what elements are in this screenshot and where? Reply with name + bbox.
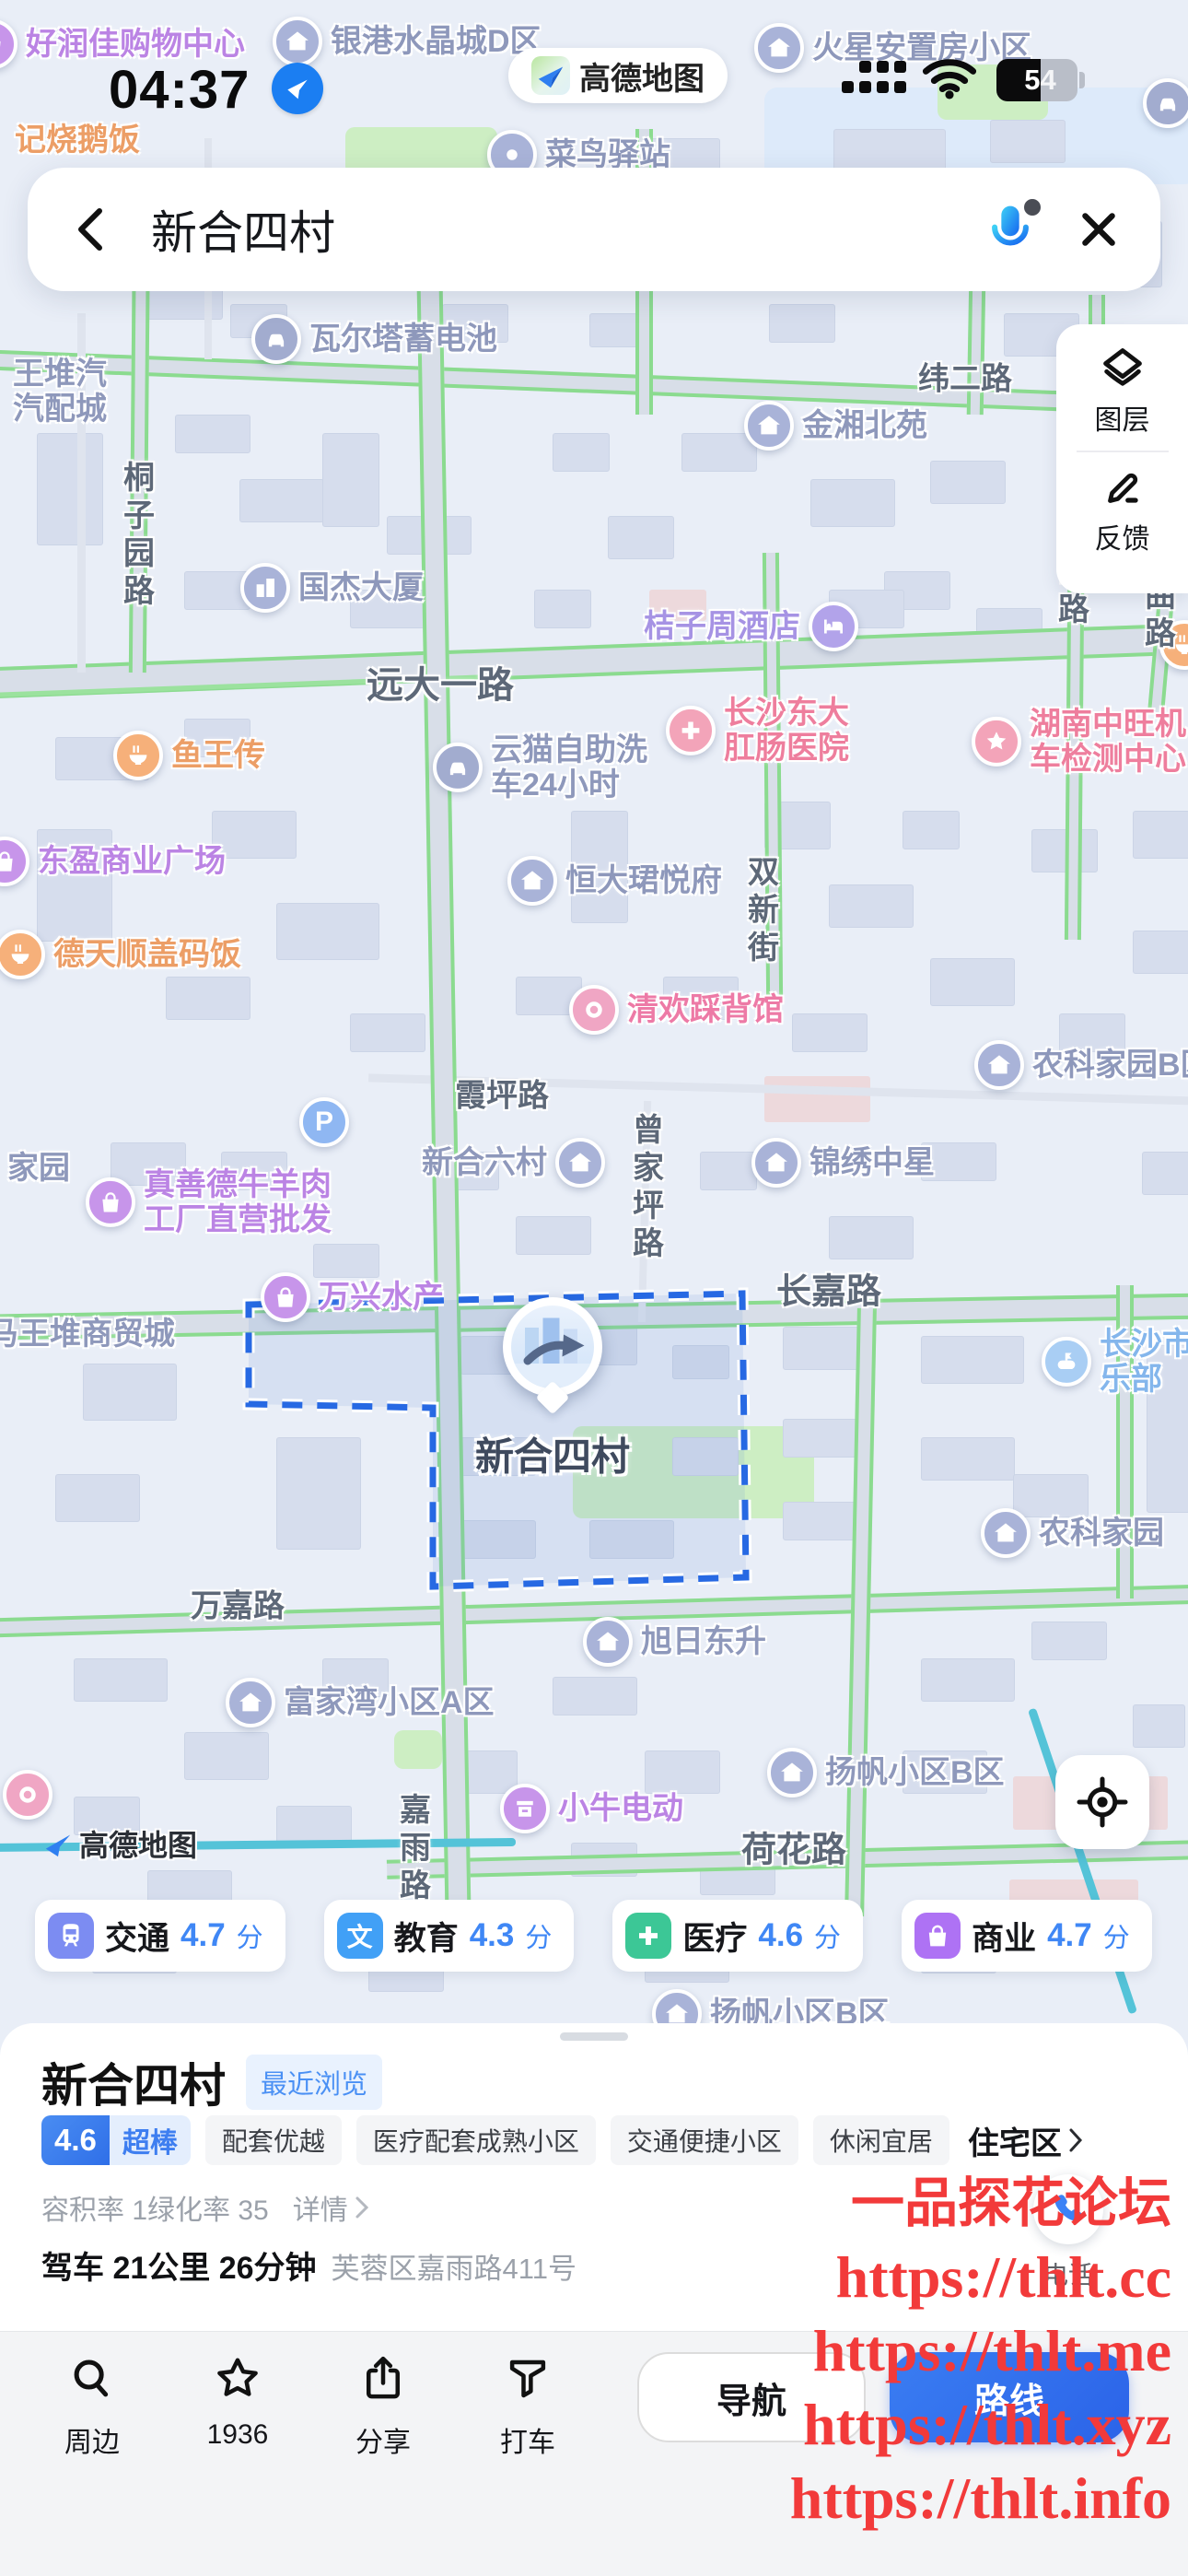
score-value: 4.6: [41, 2115, 110, 2165]
road-label: 双新街: [739, 855, 784, 968]
poi-label: 恒大珺悦府: [565, 863, 722, 898]
changsha-club[interactable]: 长沙市乐部: [1042, 1327, 1188, 1397]
guojie-building[interactable]: 国杰大厦: [240, 563, 424, 613]
amap-watermark-logo-icon: [42, 1828, 74, 1859]
forum-watermark-urls: https://thlt.cchttps://thlt.mehttps://th…: [790, 2241, 1171, 2535]
drive-info-row: 驾车 21公里 26分钟 芙蓉区嘉雨路411号: [41, 2242, 577, 2288]
forum-watermark-url: https://thlt.me: [790, 2314, 1171, 2388]
poi-label: 扬帆小区B区: [825, 1755, 1005, 1790]
house-icon: [226, 1678, 275, 1727]
forum-watermark-url: https://thlt.info: [790, 2462, 1171, 2535]
parking-icon: P: [299, 1097, 349, 1147]
yunmao-carwash[interactable]: 云猫自助洗车24小时: [433, 732, 647, 802]
rating-chip-education[interactable]: 文教育4.3分: [324, 1900, 575, 1972]
toolbar-label: 分享: [355, 2419, 411, 2460]
rating-unit: 分: [1103, 1916, 1130, 1955]
map-tools-panel: 图层 反馈: [1056, 324, 1188, 593]
place-tags-row: 4.6 超棒 配套优越医疗配套成熟小区交通便捷小区休闲宜居 住宅区: [41, 2115, 1086, 2165]
amap-brand-pill[interactable]: 高德地图: [508, 48, 728, 103]
star-icon: [972, 717, 1021, 767]
transit-icon: [48, 1913, 94, 1959]
mawangdui-trade-city[interactable]: 马王堆商贸城: [0, 1317, 175, 1352]
buildings-arrow-icon: [511, 1306, 594, 1388]
rating-unit: 分: [237, 1916, 263, 1955]
poi-label: 马王堆商贸城: [0, 1317, 175, 1352]
rating-score: 4.6: [758, 1917, 803, 1954]
poi-label: 王堆汽汽配城: [13, 357, 107, 427]
place-tag: 交通便捷小区: [611, 2115, 798, 2165]
amap-logo-icon: [531, 56, 570, 95]
yuwangchuan[interactable]: 鱼王传: [113, 731, 265, 780]
toolbar-taxi-button[interactable]: 打车: [472, 2354, 583, 2460]
fujiawan-a[interactable]: 富家湾小区A区: [226, 1678, 495, 1727]
toolbar-nearby-button[interactable]: 周边: [37, 2354, 147, 2460]
place-tag: 休闲宜居: [813, 2115, 949, 2165]
recent-view-badge: 最近浏览: [246, 2055, 382, 2110]
basket-icon: [261, 1272, 310, 1322]
toolbar-label: 周边: [64, 2419, 120, 2460]
scooter-icon: [500, 1784, 550, 1833]
road-label: 霞坪路: [455, 1071, 549, 1116]
drive-time: 驾车 21公里 26分钟: [41, 2242, 317, 2288]
location-arrow-icon: [272, 63, 323, 114]
poi-label: 长沙市乐部: [1100, 1327, 1188, 1397]
panel-divider: [1077, 451, 1169, 452]
zhongwang-vehicle-test[interactable]: 湖南中旺机车检测中心: [972, 707, 1186, 777]
poi-label: 记烧鹅饭: [15, 123, 140, 158]
road-label: 荷花路: [741, 1821, 846, 1872]
business-icon: [914, 1913, 961, 1959]
back-button[interactable]: [72, 205, 109, 253]
jinxiu-zhongxing[interactable]: 锦绣中星: [751, 1138, 935, 1188]
ring-icon: [3, 1770, 52, 1820]
selected-place-marker[interactable]: [503, 1297, 602, 1397]
poi-label: 锦绣中星: [809, 1145, 935, 1180]
poi-label: 新合六村: [422, 1145, 547, 1180]
rating-unit: 分: [814, 1916, 841, 1955]
category-link[interactable]: 住宅区: [968, 2118, 1086, 2163]
share-icon: [358, 2354, 408, 2408]
details-link[interactable]: 详情: [293, 2187, 370, 2228]
poi-label: 云猫自助洗车24小时: [491, 732, 647, 802]
amap-app-screen: 纬二路远大一路霞坪路长嘉路万嘉路荷花路桐子园路双新街陶家山路曲路曾家坪路嘉雨路好…: [0, 0, 1188, 2576]
place-tag: 医疗配套成熟小区: [356, 2115, 596, 2165]
sheet-drag-handle[interactable]: [560, 2032, 628, 2041]
house-icon: [273, 17, 322, 66]
wangdui-auto[interactable]: 王堆汽汽配城: [13, 357, 107, 427]
house-icon: [767, 1748, 817, 1797]
toolbar-label: 打车: [500, 2419, 555, 2460]
house-icon: [754, 23, 804, 73]
metrics-host: 容积率 1绿化率 35: [41, 2187, 269, 2228]
rating-score: 4.7: [1047, 1917, 1092, 1954]
cellular-signal-icon: [842, 61, 908, 101]
score-pill: 4.6 超棒: [41, 2115, 191, 2165]
place-address: 芙蓉区嘉雨路411号: [332, 2245, 577, 2287]
tags-host: 配套优越医疗配套成熟小区交通便捷小区休闲宜居: [205, 2115, 949, 2165]
juzizhou-hotel[interactable]: 桔子周酒店: [644, 602, 858, 651]
road-label: 万嘉路: [191, 1581, 285, 1626]
shopping-icon: [0, 19, 17, 69]
varta-battery[interactable]: 瓦尔塔蓄电池: [251, 314, 497, 364]
search-icon: [67, 2354, 117, 2408]
poi-label: 瓦尔塔蓄电池: [309, 322, 497, 357]
cross-icon: [666, 706, 716, 755]
poi-label: 富家湾小区A区: [284, 1685, 495, 1720]
sheet-title-row: 新合四村 最近浏览: [41, 2049, 382, 2115]
dongying-plaza[interactable]: 东盈商业广场: [0, 837, 226, 886]
house-icon: [555, 1138, 605, 1188]
feedback-label[interactable]: 反馈: [1095, 516, 1150, 556]
poi-label: 农科家园: [1039, 1516, 1164, 1551]
rating-score: 4.7: [181, 1917, 226, 1954]
house-icon: [583, 1617, 633, 1667]
forum-watermark-url: https://thlt.xyz: [790, 2388, 1171, 2462]
rating-label: 商业: [972, 1913, 1036, 1960]
poi-label: 德天顺盖码饭: [53, 937, 241, 972]
xinhe-liucun[interactable]: 新合六村: [422, 1138, 605, 1188]
amap-watermark-label: 高德地图: [79, 1822, 197, 1865]
rating-label: 交通: [105, 1913, 169, 1960]
feedback-button[interactable]: [1098, 465, 1147, 516]
status-time: 04:37: [109, 59, 250, 121]
basket-icon: [86, 1177, 135, 1227]
road-label: 远大一路: [367, 655, 514, 708]
rating-unit: 分: [525, 1916, 552, 1955]
details-label: 详情: [293, 2187, 348, 2228]
nongke-jiayuan[interactable]: 农科家园: [981, 1508, 1164, 1558]
metrics-row: 容积率 1绿化率 35 详情: [41, 2187, 370, 2228]
place-title: 新合四村: [41, 2049, 226, 2115]
amap-brand-label: 高德地图: [579, 53, 705, 99]
pink-poi-partial[interactable]: [3, 1770, 52, 1820]
jiayuan-partial[interactable]: 家园: [7, 1151, 70, 1186]
building-icon: [240, 563, 290, 613]
rating-label: 教育: [394, 1913, 459, 1960]
car-icon: [1143, 78, 1188, 128]
poi-label: 桔子周酒店: [644, 609, 800, 644]
battery-digit-right: 4: [1041, 59, 1077, 101]
house-icon: [974, 1040, 1024, 1090]
search-input[interactable]: 新合四村: [151, 196, 985, 263]
house-icon: [751, 1138, 801, 1188]
poi-label: 家园: [7, 1151, 70, 1186]
forum-watermark-url: https://thlt.cc: [790, 2241, 1171, 2314]
battery-cap: [1079, 72, 1085, 88]
category-label: 住宅区: [968, 2118, 1062, 2163]
road-label: 桐子园路: [114, 461, 159, 612]
locate-me-button[interactable]: [1055, 1755, 1149, 1849]
dongda-hospital[interactable]: 长沙东大肛肠医院: [666, 696, 849, 766]
rating-chip-transit[interactable]: 交通4.7分: [35, 1900, 285, 1972]
car-poi-partial[interactable]: [1143, 78, 1188, 128]
nongke-b[interactable]: 农科家园B区: [974, 1040, 1188, 1090]
rating-chip-medical[interactable]: 医疗4.6分: [612, 1900, 863, 1972]
car-icon: [251, 314, 301, 364]
poi-label: 鱼王传: [171, 738, 265, 773]
wanxing-seafood[interactable]: 万兴水产: [261, 1272, 444, 1322]
selected-place-label: 新合四村: [475, 1426, 630, 1482]
xuri-dongsheng[interactable]: 旭日东升: [583, 1617, 766, 1667]
taxi-icon: [503, 2354, 553, 2408]
ring-icon: [569, 985, 619, 1035]
poi-label: 湖南中旺机车检测中心: [1030, 707, 1186, 777]
club-icon: [1042, 1337, 1091, 1387]
amap-watermark: 高德地图: [42, 1822, 197, 1865]
food-icon: [0, 930, 45, 979]
poi-label: 东盈商业广场: [38, 844, 226, 879]
poi-label: 清欢踩背馆: [627, 992, 784, 1027]
hengda-junyuefu[interactable]: 恒大珺悦府: [507, 856, 722, 906]
house-icon: [744, 401, 794, 451]
star-outline-icon: [213, 2354, 262, 2408]
road-label: 纬二路: [918, 354, 1012, 399]
yingang-crystal-d[interactable]: 银港水晶城D区: [273, 17, 542, 66]
forum-watermark-title: 一品探花论坛: [790, 2167, 1171, 2241]
poi-label: 好润佳购物中心: [26, 27, 245, 62]
toolbar-label: 1936: [207, 2419, 269, 2451]
shopping-icon: [0, 837, 29, 886]
toolbar-favorites-button[interactable]: 1936: [182, 2354, 293, 2451]
battery-indicator: 5 4: [996, 59, 1077, 101]
search-bar: 新合四村: [28, 168, 1160, 291]
xiaoniu-electric[interactable]: 小牛电动: [500, 1784, 683, 1833]
car-icon: [433, 743, 483, 792]
battery-digit-left: 5: [996, 59, 1041, 101]
edu-icon: 文: [337, 1913, 383, 1959]
zhenshande-meat[interactable]: 真善德牛羊肉工厂直营批发: [86, 1167, 332, 1237]
close-search-button[interactable]: [1077, 208, 1120, 251]
poi-label: 农科家园B区: [1032, 1048, 1188, 1083]
voice-search-button[interactable]: [985, 203, 1035, 256]
detianshun[interactable]: 德天顺盖码饭: [0, 930, 241, 979]
poi-label: 小牛电动: [558, 1791, 683, 1826]
food-icon: [113, 731, 163, 780]
qinghuan-massage[interactable]: 清欢踩背馆: [569, 985, 784, 1035]
road-label: 嘉雨路: [390, 1793, 436, 1906]
area-rating-chips: 交通4.7分文教育4.3分医疗4.6分商业4.7分: [35, 1900, 1152, 1972]
rating-score: 4.3: [470, 1917, 515, 1954]
road-label: 长嘉路: [776, 1263, 881, 1314]
rating-label: 医疗: [682, 1913, 747, 1960]
yangfan-b[interactable]: 扬帆小区B区: [767, 1748, 1005, 1797]
toolbar-share-button[interactable]: 分享: [328, 2354, 438, 2460]
road-label: 曾家坪路: [623, 1113, 669, 1264]
layers-label[interactable]: 图层: [1095, 397, 1150, 438]
poi-label: 万兴水产: [319, 1280, 444, 1315]
hotel-icon: [809, 602, 858, 651]
score-caption: 超棒: [110, 2115, 191, 2165]
poi-label: 金湘北苑: [802, 408, 927, 443]
jinxiang-beiyuan[interactable]: 金湘北苑: [744, 401, 927, 451]
ji-roast-goose[interactable]: 记烧鹅饭: [15, 123, 140, 158]
poi-label: 真善德牛羊肉工厂直营批发: [144, 1167, 332, 1237]
poi-label: 银港水晶城D区: [331, 24, 542, 59]
poi-label: 旭日东升: [641, 1624, 766, 1659]
forum-watermark-overlay: 一品探花论坛 https://thlt.cchttps://thlt.mehtt…: [790, 2167, 1171, 2535]
marker-illustration: [511, 1306, 594, 1388]
house-icon: [507, 856, 557, 906]
layers-button[interactable]: [1096, 345, 1149, 397]
parking[interactable]: P: [299, 1097, 349, 1147]
poi-label: 长沙东大肛肠医院: [724, 696, 849, 766]
house-icon: [981, 1508, 1031, 1558]
medical-icon: [625, 1913, 671, 1959]
wifi-icon: [921, 57, 978, 104]
poi-label: 国杰大厦: [298, 570, 424, 605]
mic-badge-icon: [1022, 197, 1042, 217]
rating-chip-business[interactable]: 商业4.7分: [902, 1900, 1152, 1972]
place-tag: 配套优越: [205, 2115, 342, 2165]
